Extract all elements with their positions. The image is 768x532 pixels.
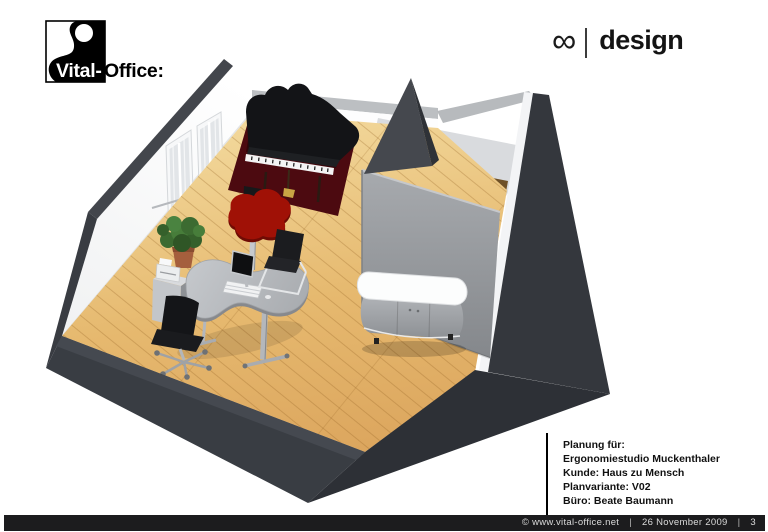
divider-bar [585, 28, 587, 58]
info-line-studio: Ergonomiestudio Muckenthaler [563, 452, 762, 466]
oval-sideboard [357, 272, 467, 357]
brand-first: Vital- [56, 60, 102, 82]
info-line-planvariante: Planvariante: V02 [563, 480, 762, 494]
info-line-buero: Büro: Beate Baumann [563, 494, 762, 508]
mouse [265, 295, 271, 299]
footer-separator: | [738, 518, 741, 528]
info-line-kunde: Kunde: Haus zu Mensch [563, 466, 762, 480]
info-line-planung: Planung für: [563, 438, 762, 452]
footer-separator: | [629, 518, 632, 528]
project-info-block: Planung für: Ergonomiestudio Muckenthale… [546, 433, 762, 515]
vital-office-logo: Vital- Office: [43, 19, 213, 91]
footer-date: 26 November 2009 [642, 518, 728, 528]
infinity-icon: ∞ [552, 24, 576, 58]
footer-copyright: © www.vital-office.net [522, 518, 619, 528]
footer-bar: © www.vital-office.net | 26 November 200… [4, 515, 765, 531]
footer-page-number: 3 [750, 518, 756, 528]
slide-page: Vital- Office: ∞ design Planung für: Erg… [0, 0, 768, 532]
design-label: design [599, 25, 683, 56]
logo-yin-dot [75, 24, 93, 42]
brand-second: Office: [104, 60, 164, 82]
design-logo: ∞ design [552, 22, 683, 64]
